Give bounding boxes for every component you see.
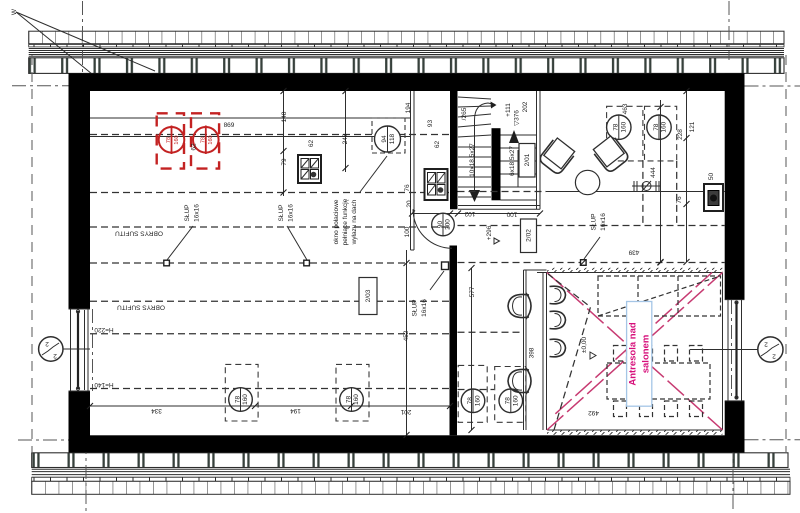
svg-text:Antresola nad: Antresola nad: [628, 322, 639, 386]
svg-text:/265: /265: [461, 107, 468, 120]
svg-text:194: 194: [405, 102, 412, 113]
svg-text:OBRYS SUFITU: OBRYS SUFITU: [117, 303, 165, 310]
svg-text:452: 452: [403, 330, 410, 341]
svg-text:94: 94: [381, 135, 388, 143]
svg-text:62: 62: [191, 143, 198, 151]
svg-text:78: 78: [613, 123, 620, 131]
svg-text:398: 398: [529, 347, 536, 358]
svg-text:194: 194: [290, 407, 301, 414]
svg-text:SŁUP: SŁUP: [184, 205, 191, 222]
svg-text:+296: +296: [486, 225, 493, 240]
svg-text:248: 248: [342, 133, 349, 144]
svg-text:100: 100: [506, 210, 517, 217]
svg-text:200: 200: [445, 219, 452, 230]
svg-text:2: 2: [45, 340, 49, 347]
svg-text:160: 160: [475, 395, 482, 406]
svg-text:102: 102: [464, 210, 475, 217]
svg-text:160: 160: [512, 395, 519, 406]
svg-text:78: 78: [201, 137, 207, 143]
svg-text:118: 118: [389, 133, 396, 144]
svg-text:201: 201: [400, 408, 411, 415]
svg-text:pełniące funkcję: pełniące funkcję: [342, 198, 349, 245]
svg-text:16x16: 16x16: [194, 204, 201, 222]
svg-text:78: 78: [505, 397, 512, 405]
svg-text:2/02: 2/02: [526, 229, 533, 242]
svg-text:10x18,5x27: 10x18,5x27: [469, 143, 476, 177]
svg-text:463: 463: [622, 103, 629, 114]
svg-text:2/03: 2/03: [365, 289, 372, 302]
svg-text:76: 76: [404, 184, 411, 192]
svg-text:76: 76: [676, 196, 683, 204]
svg-text:78: 78: [467, 397, 474, 405]
svg-text:148: 148: [281, 111, 288, 122]
svg-text:wyłazu na dach: wyłazu na dach: [351, 199, 358, 245]
svg-text:salonem: salonem: [641, 335, 652, 374]
svg-text:698: 698: [223, 120, 234, 127]
svg-text:2/01: 2/01: [524, 153, 531, 166]
svg-text:+111: +111: [505, 103, 512, 117]
svg-text:160: 160: [208, 135, 214, 144]
svg-text:160: 160: [174, 135, 180, 144]
svg-text:SŁUP: SŁUP: [591, 214, 598, 231]
svg-text:334: 334: [151, 407, 162, 414]
svg-text:160: 160: [620, 121, 627, 132]
svg-text:444: 444: [650, 167, 657, 178]
svg-text:±0,00: ±0,00: [581, 337, 588, 354]
svg-text:62: 62: [434, 141, 441, 149]
svg-text:121: 121: [689, 121, 696, 132]
svg-text:OBRYS SUFITU: OBRYS SUFITU: [115, 229, 163, 236]
svg-text:78: 78: [234, 396, 241, 404]
svg-text:2: 2: [764, 340, 768, 347]
svg-text:20: 20: [406, 200, 413, 208]
svg-text:79: 79: [281, 158, 288, 166]
svg-text:202: 202: [522, 101, 529, 112]
svg-text:160: 160: [661, 121, 668, 132]
svg-text:62: 62: [308, 140, 315, 148]
svg-text:2: 2: [772, 352, 776, 359]
svg-text:492: 492: [588, 409, 599, 416]
svg-text:228: 228: [677, 129, 684, 140]
svg-text:W: W: [11, 8, 18, 15]
svg-text:H=140: H=140: [94, 381, 114, 388]
svg-text:16x16: 16x16: [421, 299, 428, 317]
svg-text:439: 439: [628, 249, 639, 256]
svg-text:160: 160: [242, 394, 249, 405]
svg-text:16x16: 16x16: [288, 204, 295, 222]
svg-text:2: 2: [53, 352, 57, 359]
svg-text:100: 100: [404, 226, 411, 237]
svg-text:577: 577: [469, 286, 476, 297]
svg-text:93: 93: [427, 120, 434, 128]
svg-text:H=220: H=220: [94, 326, 114, 333]
svg-text:okno połaciowe: okno połaciowe: [333, 199, 340, 244]
svg-text:78: 78: [166, 137, 172, 143]
svg-text:78: 78: [653, 123, 660, 131]
svg-text:78: 78: [345, 396, 352, 404]
svg-text:SŁUP: SŁUP: [278, 205, 285, 222]
svg-text:▽376: ▽376: [514, 110, 521, 126]
svg-text:SŁUP: SŁUP: [412, 300, 419, 317]
svg-text:16x16: 16x16: [600, 213, 607, 231]
svg-text:50: 50: [708, 173, 715, 181]
svg-text:6x18,5x27: 6x18,5x27: [509, 146, 516, 176]
